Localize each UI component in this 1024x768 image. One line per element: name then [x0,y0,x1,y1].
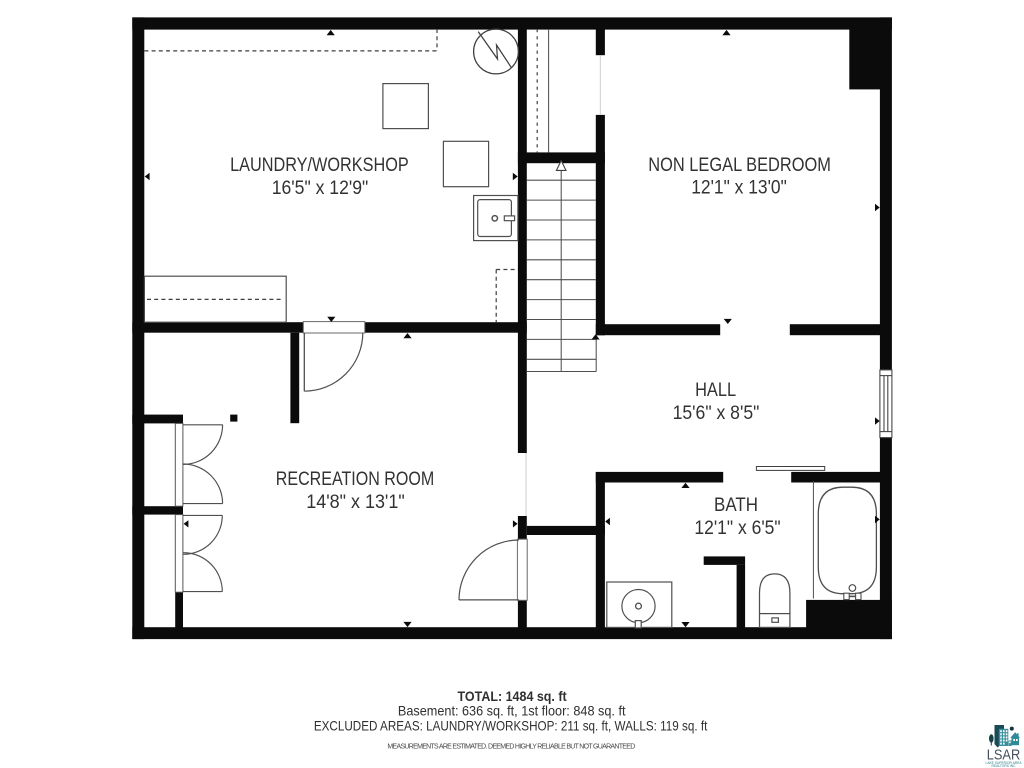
svg-text:12'1" x 6'5": 12'1" x 6'5" [694,518,780,539]
svg-text:LAUNDRY/WORKSHOP: LAUNDRY/WORKSHOP [230,155,409,176]
svg-text:RECREATION ROOM: RECREATION ROOM [276,469,434,490]
svg-text:NON LEGAL BEDROOM: NON LEGAL BEDROOM [648,155,831,176]
svg-text:HALL: HALL [695,380,736,401]
svg-text:MEASUREMENTS ARE ESTIMATED. DE: MEASUREMENTS ARE ESTIMATED. DEEMED HIGHL… [387,744,635,751]
svg-text:BATH: BATH [714,495,758,516]
svg-text:REALTORS INC: REALTORS INC [992,764,1017,768]
svg-text:12'1" x 13'0": 12'1" x 13'0" [691,177,787,198]
svg-text:15'6" x 8'5": 15'6" x 8'5" [673,403,760,424]
svg-text:14'8" x 13'1": 14'8" x 13'1" [306,492,404,513]
svg-text:16'5" x 12'9": 16'5" x 12'9" [272,178,369,199]
svg-text:Basement: 636 sq. ft, 1st floo: Basement: 636 sq. ft, 1st floor: 848 sq.… [398,703,626,719]
svg-text:EXCLUDED AREAS: LAUNDRY/WORKSH: EXCLUDED AREAS: LAUNDRY/WORKSHOP: 211 sq… [314,717,708,733]
